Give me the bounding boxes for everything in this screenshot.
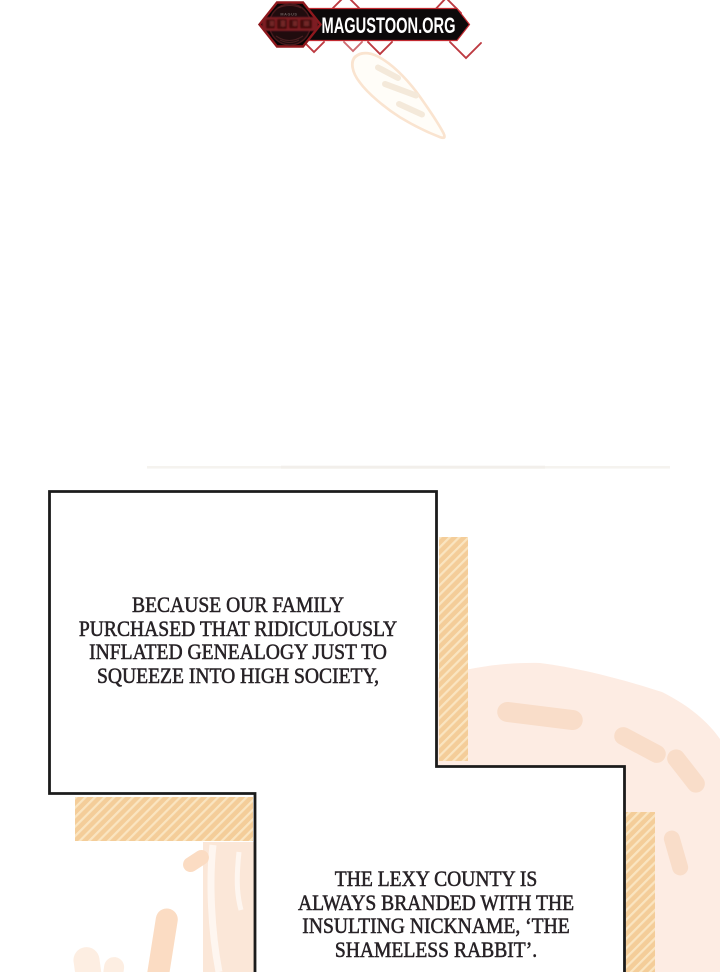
svg-text:MAGUSTOON.ORG: MAGUSTOON.ORG [322,13,456,38]
svg-text:MAGUS: MAGUS [280,13,297,17]
